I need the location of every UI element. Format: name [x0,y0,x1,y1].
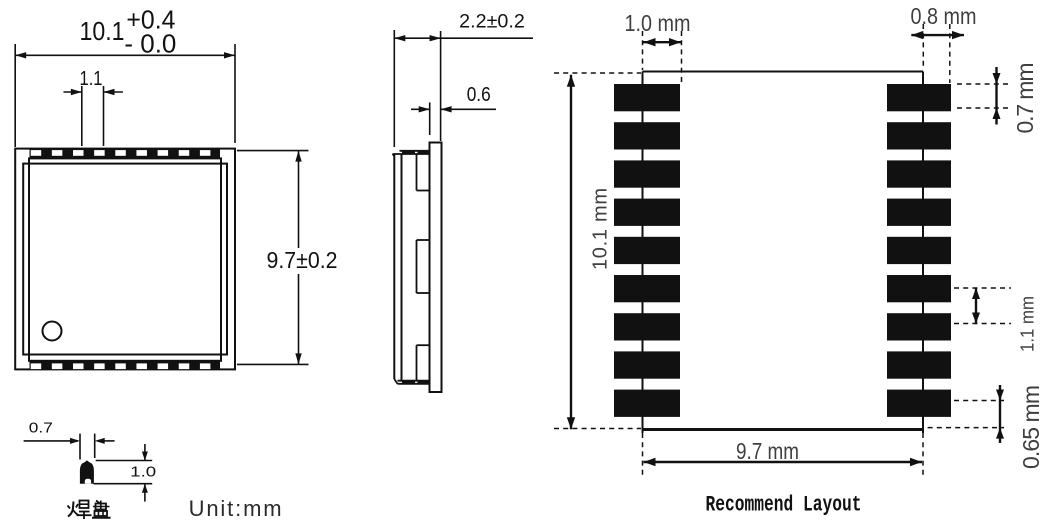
svg-text:9.7±0.2: 9.7±0.2 [267,247,338,273]
svg-text:1.0 mm: 1.0 mm [625,10,691,36]
svg-text:10.1 mm: 10.1 mm [590,188,612,270]
svg-text:9.7 mm: 9.7 mm [736,438,799,464]
svg-text:0.7: 0.7 [29,420,53,437]
svg-text:Recommend Layout: Recommend Layout [706,493,862,518]
svg-text:10.1: 10.1 [80,16,125,46]
svg-text:- 0.0: - 0.0 [124,29,176,59]
svg-text:0.65 mm: 0.65 mm [1018,385,1044,469]
svg-text:1.1 mm: 1.1 mm [1017,296,1038,352]
svg-text:2.2±0.2: 2.2±0.2 [459,11,525,32]
svg-text:0.8 mm: 0.8 mm [911,3,977,29]
svg-text:0.6: 0.6 [467,84,491,106]
svg-text:1.0: 1.0 [130,464,156,481]
svg-text:Unit:mm: Unit:mm [189,496,282,521]
svg-text:0.7 mm: 0.7 mm [1012,63,1038,134]
svg-text:1.1: 1.1 [80,67,103,90]
